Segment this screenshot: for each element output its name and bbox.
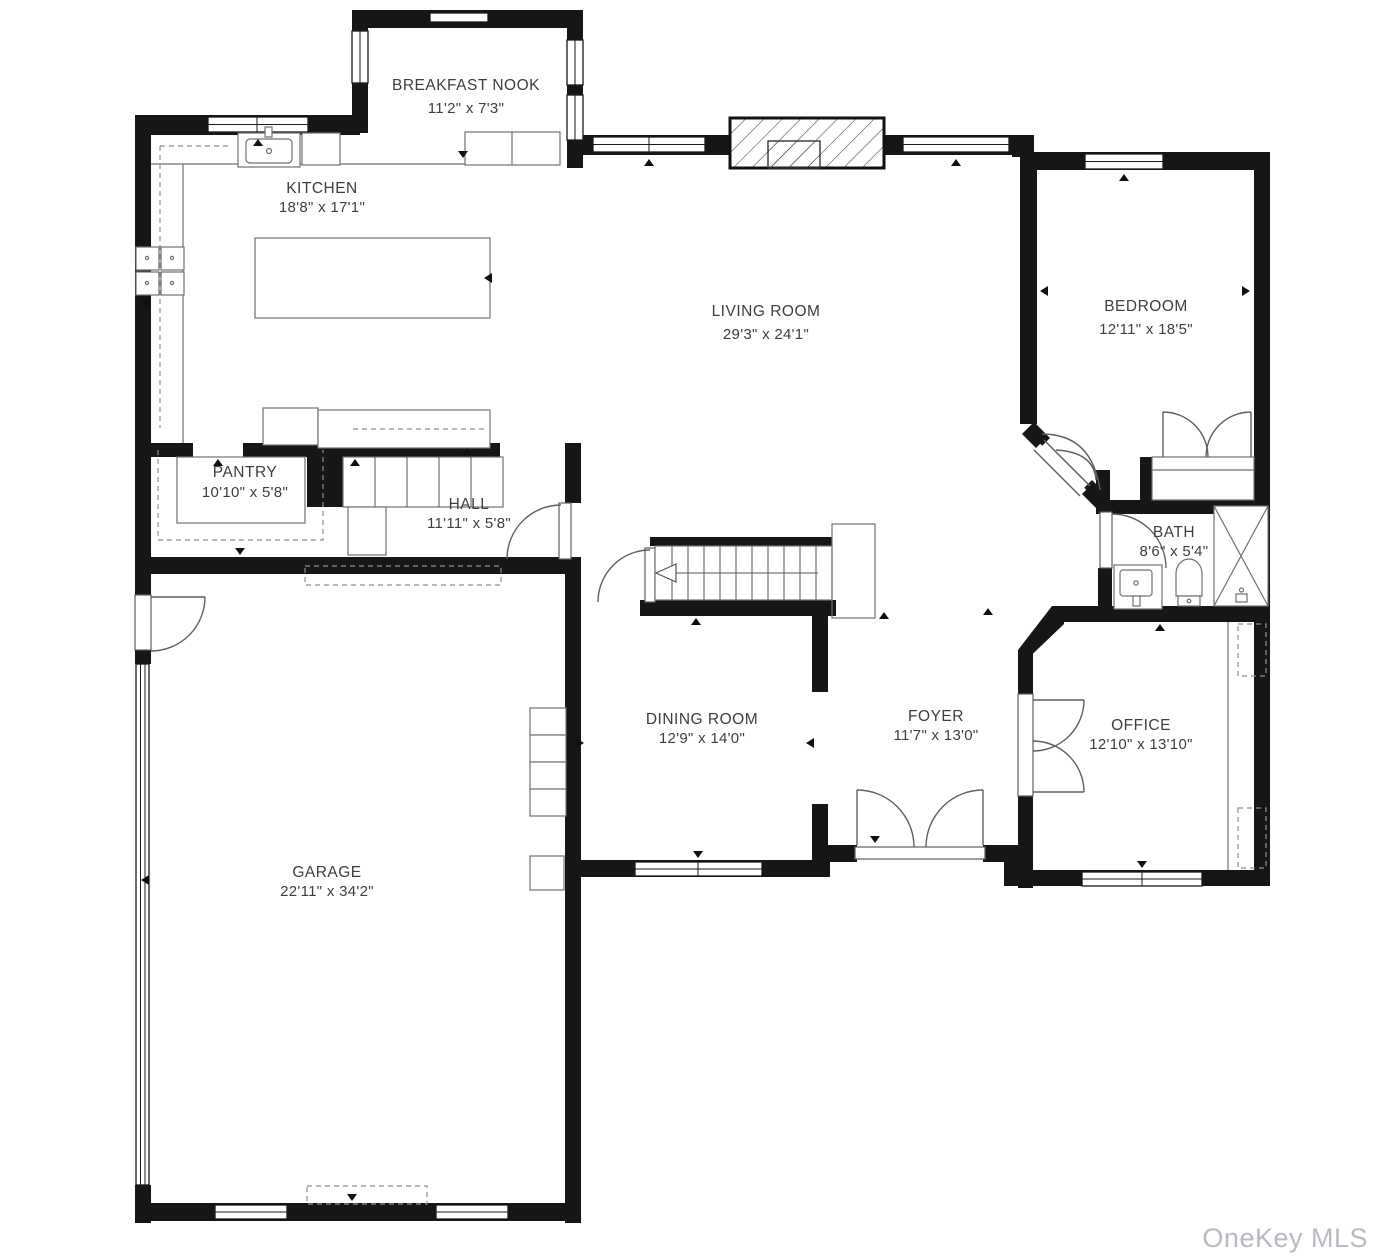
window-garage-2 xyxy=(436,1205,508,1219)
window-living-2 xyxy=(903,137,1009,152)
room-label-pantry: PANTRY xyxy=(213,464,277,481)
sink-icon xyxy=(238,127,300,167)
fridge-icon xyxy=(465,132,560,165)
window-living-1 xyxy=(593,137,705,152)
watermark: OneKey MLS xyxy=(1202,1223,1368,1253)
dishwasher-icon xyxy=(302,133,340,165)
room-dims-dining-room: 12'9" x 14'0" xyxy=(659,730,745,747)
kitchen-fixtures xyxy=(136,127,560,448)
bedroom-closet xyxy=(1152,457,1254,500)
room-label-office: OFFICE xyxy=(1111,717,1171,734)
window-bedroom xyxy=(1085,154,1163,169)
room-dims-hall: 11'11" x 5'8" xyxy=(427,515,511,532)
floor-plan: BREAKFAST NOOK 11'2" x 7'3" KITCHEN 18'8… xyxy=(0,0,1378,1260)
room-dims-bedroom: 12'11" x 18'5" xyxy=(1099,321,1193,338)
room-label-living-room: LIVING ROOM xyxy=(712,303,821,320)
room-dims-garage: 22'11" x 34'2" xyxy=(280,883,374,900)
window-nook-top xyxy=(430,13,488,22)
room-dims-pantry: 10'10" x 5'8" xyxy=(202,484,288,501)
room-dims-living-room: 29'3" x 24'1" xyxy=(723,326,809,343)
window-garage-1 xyxy=(215,1205,287,1219)
lower-counter xyxy=(263,408,490,448)
vanity-sink-icon xyxy=(1114,565,1162,609)
room-label-garage: GARAGE xyxy=(292,864,361,881)
fireplace-icon xyxy=(730,118,884,168)
room-label-foyer: FOYER xyxy=(908,708,964,725)
window-nook-right-1 xyxy=(567,40,583,85)
room-label-hall: HALL xyxy=(449,496,490,513)
window-nook-right-2 xyxy=(567,95,583,140)
foyer-entry-doors xyxy=(855,790,985,859)
bedroom-closet-doors xyxy=(1163,412,1251,457)
hall-garage-door xyxy=(507,503,571,559)
room-label-bedroom: BEDROOM xyxy=(1104,298,1188,315)
stair-railing xyxy=(832,524,875,618)
stairs-door xyxy=(598,548,655,602)
office-french-doors xyxy=(1018,694,1084,796)
floor-plan-canvas: BREAKFAST NOOK 11'2" x 7'3" KITCHEN 18'8… xyxy=(0,0,1378,1260)
window-office xyxy=(1082,872,1202,886)
window-dining xyxy=(635,862,762,876)
garage-shelves xyxy=(530,708,566,890)
room-dims-kitchen: 18'8" x 17'1" xyxy=(279,199,365,216)
room-dims-foyer: 11'7" x 13'0" xyxy=(893,727,978,744)
kitchen-island xyxy=(255,238,492,318)
toilet-icon xyxy=(1176,559,1202,606)
window-kitchen xyxy=(208,117,308,132)
shower-icon xyxy=(1214,506,1268,606)
window-nook-left xyxy=(352,31,368,83)
room-dims-office: 12'10" x 13'10" xyxy=(1089,736,1192,753)
room-label-breakfast-nook: BREAKFAST NOOK xyxy=(392,77,540,94)
room-dims-breakfast-nook: 11'2" x 7'3" xyxy=(428,100,504,117)
room-label-dining-room: DINING ROOM xyxy=(646,711,758,728)
garage-entry-door xyxy=(135,595,205,651)
room-label-bath: BATH xyxy=(1153,524,1195,541)
garage-door-band xyxy=(136,664,149,1185)
room-label-kitchen: KITCHEN xyxy=(286,180,358,197)
room-dims-bath: 8'6" x 5'4" xyxy=(1140,543,1209,560)
